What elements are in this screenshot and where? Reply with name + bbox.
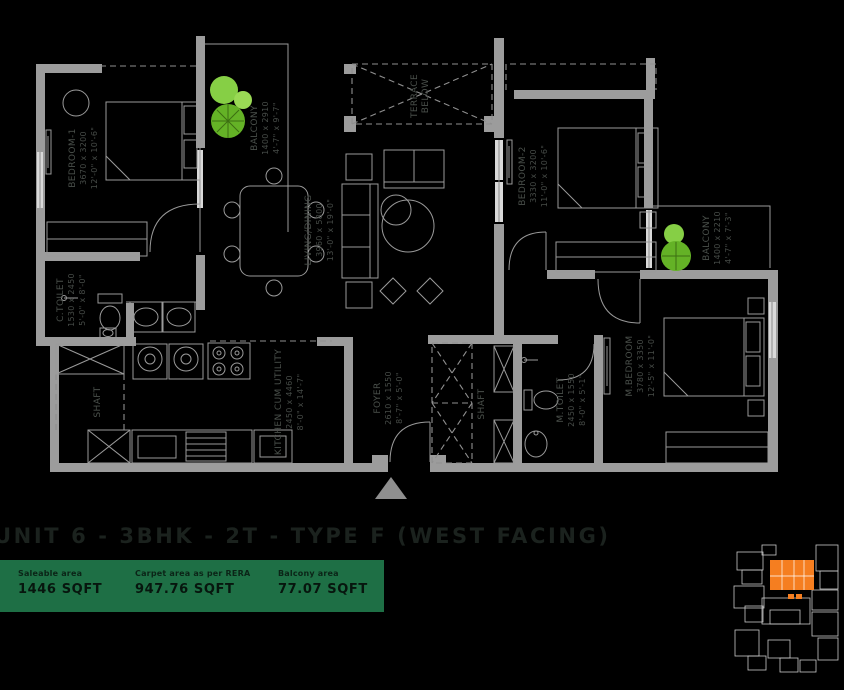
sink-icon	[167, 308, 191, 326]
svg-text:8'-0" x 5'-1": 8'-0" x 5'-1"	[578, 374, 587, 426]
svg-text:12'-5" x 11'-0": 12'-5" x 11'-0"	[647, 335, 656, 397]
svg-text:2610 x 1550: 2610 x 1550	[384, 371, 393, 425]
sofa-icon	[342, 184, 378, 278]
svg-text:1400 x 2910: 1400 x 2910	[261, 101, 270, 155]
terrace-label: TERRACE BELOW	[410, 74, 431, 119]
stat-label: Saleable area	[18, 569, 102, 578]
dashed-lines	[56, 64, 656, 463]
svg-text:11'-0" x 10'-6": 11'-0" x 10'-6"	[540, 145, 549, 207]
key-plan-highlighted-unit	[770, 560, 814, 599]
tree-icon	[210, 76, 252, 138]
floor-plan: BEDROOM-1 3670 x 3200 12'-0" x 10'-6" BA…	[0, 0, 844, 520]
svg-text:1530 x 2450: 1530 x 2450	[67, 273, 76, 327]
entry-arrow-icon	[375, 477, 407, 499]
bedroom-2-label: BEDROOM-2 3330 x 3200 11'-0" x 10'-6"	[518, 145, 549, 207]
shaft-center-box	[494, 346, 514, 463]
m-toilet-label: M.TOILET 2450 x 1550 8'-0" x 5'-1"	[556, 373, 587, 427]
bed-icon	[664, 318, 764, 396]
dining-table-icon	[240, 186, 308, 276]
svg-text:SHAFT: SHAFT	[477, 388, 487, 419]
svg-text:BALCONY: BALCONY	[250, 105, 260, 151]
svg-text:TERRACE: TERRACE	[410, 74, 420, 119]
svg-text:4'-7" x 9'-7": 4'-7" x 9'-7"	[272, 102, 281, 154]
svg-text:3780 x 3350: 3780 x 3350	[636, 339, 645, 393]
svg-text:SHAFT: SHAFT	[93, 386, 103, 417]
balcony-1-label: BALCONY 1400 x 2910 4'-7" x 9'-7"	[250, 101, 281, 155]
key-plan	[724, 540, 844, 690]
svg-text:BALCONY: BALCONY	[702, 215, 712, 261]
svg-text:M.BEDROOM: M.BEDROOM	[625, 335, 635, 396]
stat-value: 1446 SQFT	[18, 582, 102, 597]
svg-text:3960 x 5800: 3960 x 5800	[315, 203, 324, 257]
svg-text:3670 x 3200: 3670 x 3200	[79, 131, 88, 185]
svg-text:13'-0" x 19'-0": 13'-0" x 19'-0"	[326, 199, 335, 261]
bedroom-1-label: BEDROOM-1 3670 x 3200 12'-0" x 10'-6"	[68, 127, 99, 189]
svg-text:1400 x 2210: 1400 x 2210	[713, 211, 722, 265]
toilet-icon	[98, 294, 122, 303]
svg-text:FOYER: FOYER	[373, 382, 383, 413]
sink-icon	[134, 308, 158, 326]
bedroom-2-door	[509, 232, 546, 270]
svg-text:2450 x 4460: 2450 x 4460	[285, 375, 294, 429]
svg-text:C.TOILET: C.TOILET	[56, 278, 66, 322]
bed-icon	[558, 128, 658, 208]
foyer-label: FOYER 2610 x 1550 8'-7" x 5'-0"	[373, 371, 404, 425]
c-toilet-label: C.TOILET 1530 x 2450 5'-0" x 8'-0"	[56, 273, 87, 327]
living-dining-label: LIVING/DINING 3960 x 5800 13'-0" x 19'-0…	[304, 194, 335, 265]
svg-text:KITCHEN CUM UTILITY: KITCHEN CUM UTILITY	[274, 349, 284, 455]
floor-plan-page: BEDROOM-1 3670 x 3200 12'-0" x 10'-6" BA…	[0, 0, 844, 690]
svg-text:BEDROOM-2: BEDROOM-2	[518, 146, 528, 206]
svg-text:BELOW: BELOW	[421, 79, 431, 114]
svg-text:4'-7" x 7'-3": 4'-7" x 7'-3"	[724, 212, 733, 264]
svg-text:12'-0" x 10'-6": 12'-0" x 10'-6"	[90, 127, 99, 189]
entry-door	[390, 422, 430, 462]
kitchen-furniture	[126, 302, 292, 463]
svg-text:2450 x 1550: 2450 x 1550	[567, 373, 576, 427]
stat-value: 77.07 SQFT	[278, 582, 368, 597]
room-labels: BEDROOM-1 3670 x 3200 12'-0" x 10'-6" BA…	[56, 74, 733, 455]
svg-text:8'-7" x 5'-0": 8'-7" x 5'-0"	[395, 372, 404, 424]
svg-text:3330 x 3200: 3330 x 3200	[529, 149, 538, 203]
carpet-area-stat: Carpet area as per RERA 947.76 SQFT	[135, 569, 250, 597]
stat-label: Carpet area as per RERA	[135, 569, 250, 578]
toilet-icon	[524, 390, 532, 410]
tree-icon	[661, 224, 691, 271]
m-bedroom-door	[598, 279, 640, 323]
balcony-area-stat: Balcony area 77.07 SQFT	[278, 569, 368, 597]
kitchen-label: KITCHEN CUM UTILITY 2450 x 4460 8'-0" x …	[274, 349, 305, 455]
stat-value: 947.76 SQFT	[135, 582, 250, 597]
svg-text:BEDROOM-1: BEDROOM-1	[68, 128, 78, 188]
m-bedroom-label: M.BEDROOM 3780 x 3350 12'-5" x 11'-0"	[625, 335, 656, 397]
coffee-table-icon	[382, 200, 434, 252]
hob-icon	[208, 343, 250, 379]
balcony-2-label: BALCONY 1400 x 2210 4'-7" x 7'-3"	[702, 211, 733, 265]
shaft-center-label: SHAFT	[477, 388, 487, 419]
svg-text:5'-0" x 8'-0": 5'-0" x 8'-0"	[78, 274, 87, 326]
unit-title: UNIT 6 - 3BHK - 2T - TYPE F (WEST FACING…	[0, 524, 611, 548]
svg-text:8'-0" x 14'-7": 8'-0" x 14'-7"	[296, 373, 305, 430]
shaft-left-label: SHAFT	[93, 386, 103, 417]
svg-text:M.TOILET: M.TOILET	[556, 377, 566, 422]
svg-text:LIVING/DINING: LIVING/DINING	[304, 194, 314, 265]
saleable-area-stat: Saleable area 1446 SQFT	[18, 569, 102, 597]
area-stats-bar: Saleable area 1446 SQFT Carpet area as p…	[0, 560, 384, 612]
stat-label: Balcony area	[278, 569, 368, 578]
